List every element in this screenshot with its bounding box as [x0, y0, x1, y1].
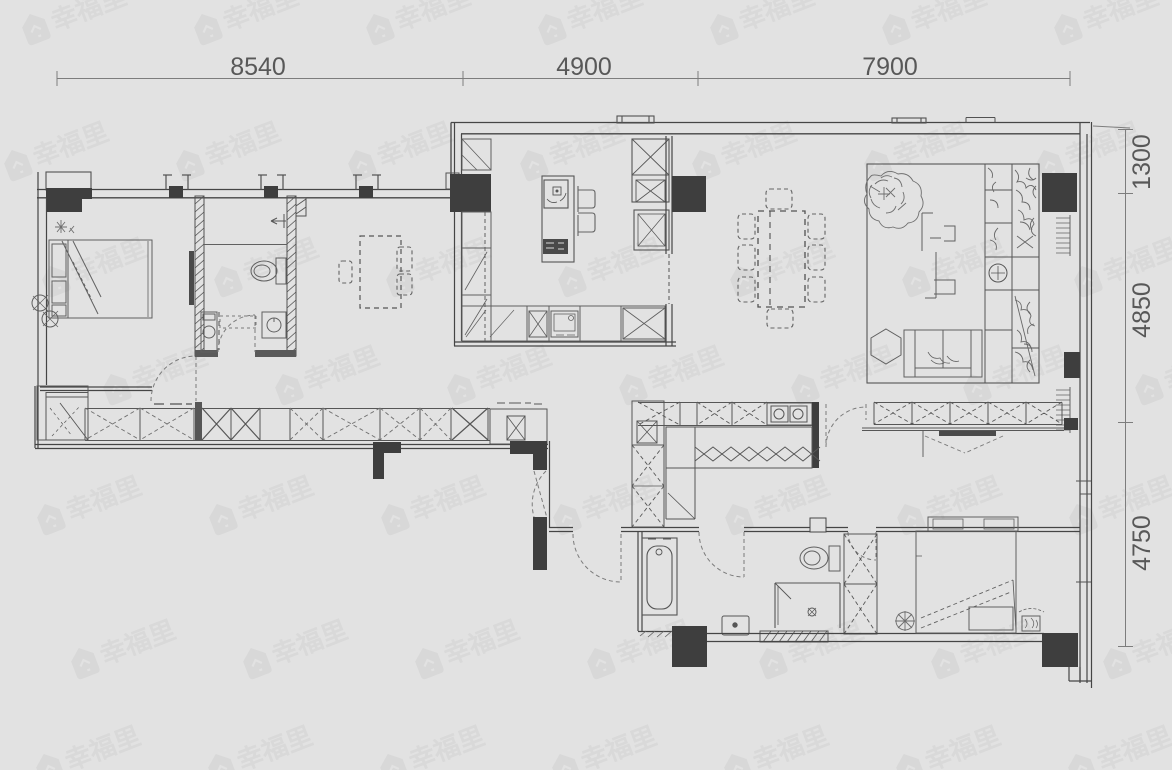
svg-text:4750: 4750 [1128, 515, 1156, 571]
svg-text:4850: 4850 [1128, 282, 1156, 338]
svg-text:7900: 7900 [862, 53, 918, 81]
svg-text:4900: 4900 [556, 53, 612, 81]
svg-text:1300: 1300 [1128, 134, 1156, 190]
svg-text:8540: 8540 [230, 53, 286, 81]
